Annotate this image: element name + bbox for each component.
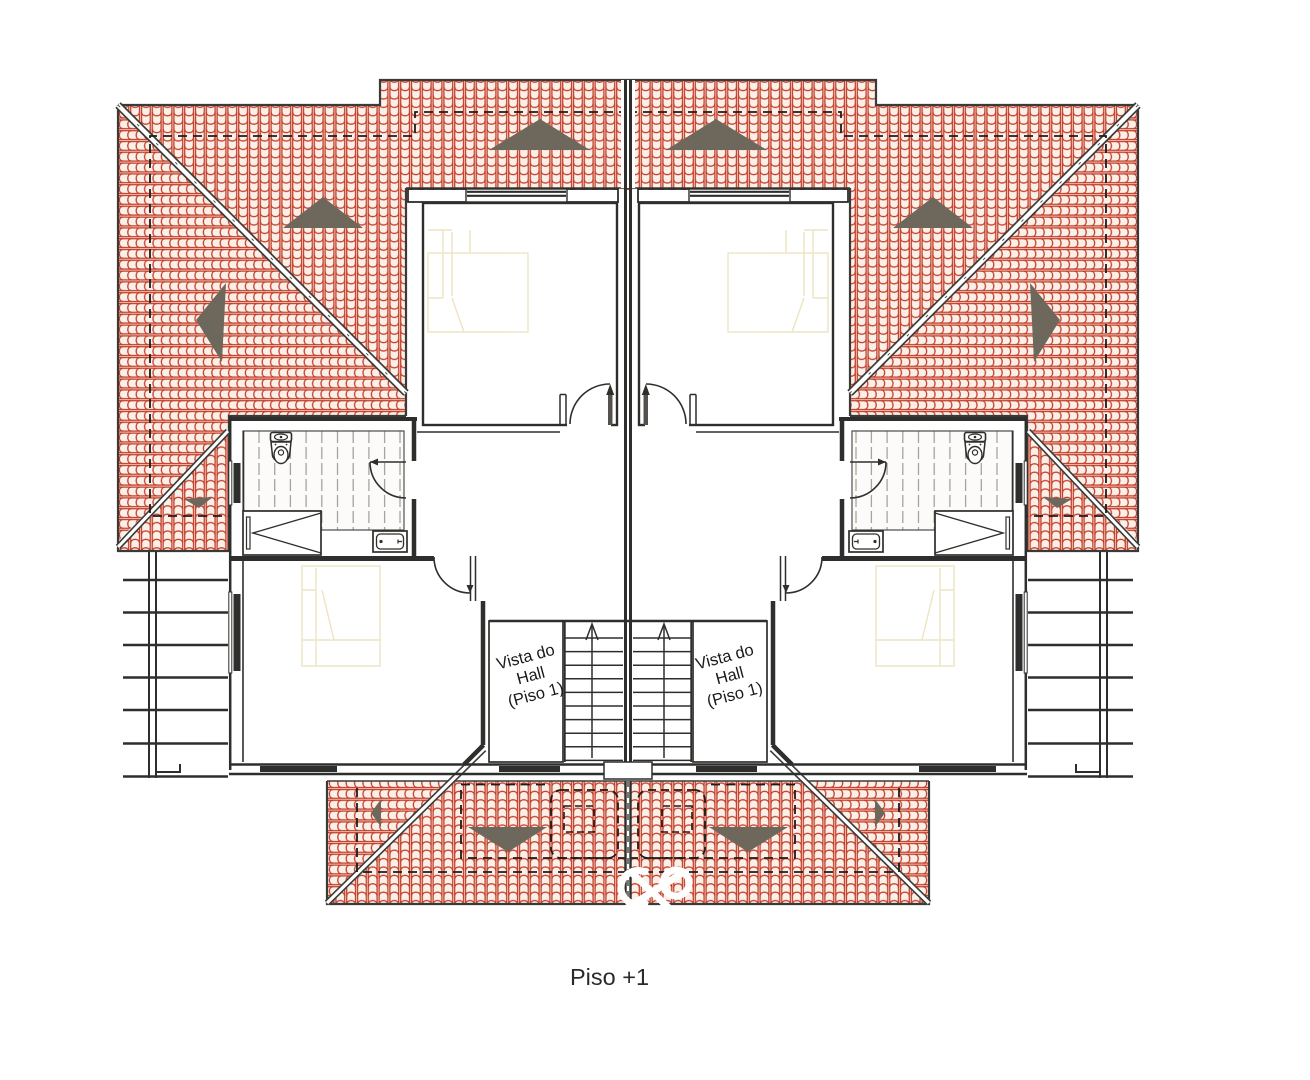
svg-text:Piso +1: Piso +1 [570, 964, 649, 990]
